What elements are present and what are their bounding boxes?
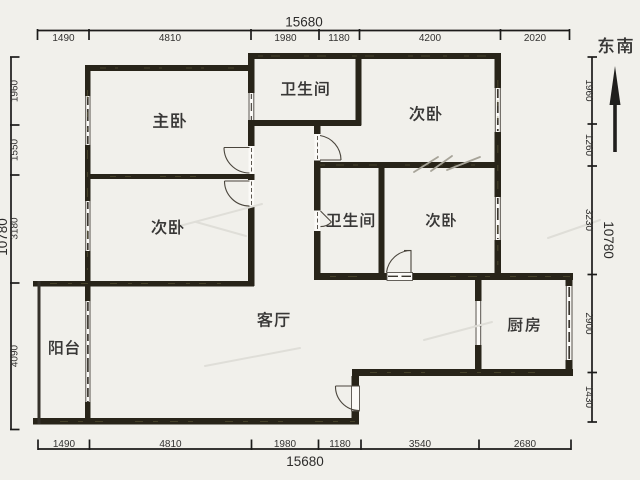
svg-text:2900: 2900 (583, 312, 594, 335)
svg-text:1960: 1960 (583, 79, 594, 102)
svg-text:3540: 3540 (409, 439, 432, 450)
svg-text:15680: 15680 (286, 454, 324, 469)
svg-text:4810: 4810 (159, 33, 182, 44)
svg-text:4200: 4200 (419, 33, 442, 44)
svg-text:1490: 1490 (52, 33, 75, 44)
svg-text:4090: 4090 (10, 344, 21, 367)
svg-text:4810: 4810 (159, 439, 182, 450)
svg-text:1980: 1980 (274, 439, 297, 450)
svg-text:10780: 10780 (0, 218, 10, 256)
svg-text:1260: 1260 (583, 134, 594, 157)
svg-text:3230: 3230 (583, 209, 594, 232)
svg-text:2680: 2680 (514, 439, 537, 450)
svg-text:1980: 1980 (274, 33, 297, 44)
svg-text:1490: 1490 (53, 439, 76, 450)
svg-text:3180: 3180 (10, 217, 21, 240)
svg-text:10780: 10780 (601, 221, 616, 259)
svg-text:1180: 1180 (328, 33, 350, 44)
svg-text:1960: 1960 (10, 79, 21, 102)
svg-text:1180: 1180 (329, 439, 351, 450)
svg-text:1550: 1550 (10, 138, 21, 161)
svg-text:2020: 2020 (524, 33, 547, 44)
svg-text:1430: 1430 (583, 386, 594, 409)
svg-text:15680: 15680 (285, 15, 323, 30)
